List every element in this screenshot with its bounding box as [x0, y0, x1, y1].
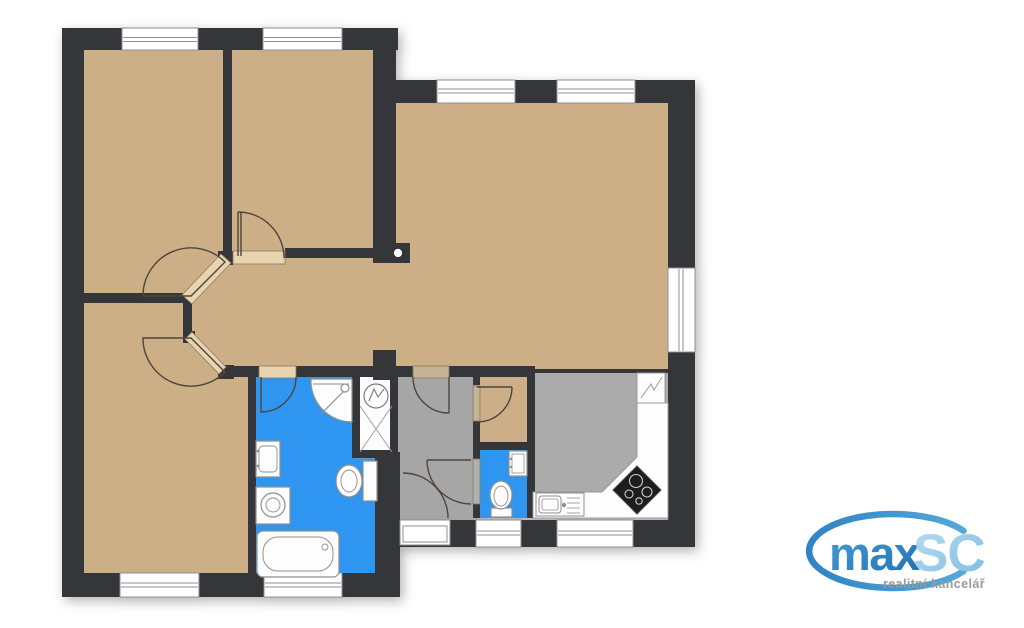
wall-living-kitchen-line	[533, 369, 668, 373]
column-marker-dot	[394, 249, 403, 258]
window	[668, 268, 695, 352]
floorplan	[62, 28, 695, 597]
wall-corridor-east-b	[473, 421, 480, 459]
wall-top-left	[62, 28, 398, 50]
window	[437, 80, 515, 103]
wall-bottom-left	[62, 573, 400, 597]
wall-bed2-south	[285, 248, 375, 258]
logo-tagline: realitní kancelář	[883, 577, 985, 591]
bathtub-icon	[257, 531, 339, 577]
wall-closet-west	[352, 373, 360, 458]
kitchen-sink-icon	[536, 493, 584, 516]
wall-left	[62, 28, 84, 595]
pantry-floor	[473, 373, 533, 450]
window	[557, 520, 633, 547]
wc-toilet-icon	[490, 481, 512, 517]
sill-pantry-door	[473, 386, 480, 421]
agency-logo: max SC realitní kancelář	[809, 514, 985, 591]
corridor-floor	[392, 369, 478, 520]
wall-closet-south	[352, 450, 394, 458]
wall-pantry-wc	[473, 442, 533, 450]
refrigerator-icon	[637, 373, 665, 403]
sill-wc-door	[473, 459, 480, 504]
utility-closet-floor	[356, 373, 394, 458]
window	[120, 573, 199, 597]
living-room-floor	[392, 103, 668, 373]
wall-corridor-north-b	[449, 366, 533, 377]
entrance-door	[400, 520, 450, 545]
logo-text-primary: max	[829, 527, 920, 580]
wall-corridor-east-a	[473, 373, 480, 385]
washing-machine-icon	[256, 487, 290, 524]
window	[476, 520, 521, 547]
window	[122, 28, 198, 50]
window	[263, 28, 342, 50]
wall-corridor-north-a	[396, 366, 413, 377]
floorplan-canvas: max SC realitní kancelář	[0, 0, 1024, 628]
washbasin-icon	[256, 441, 280, 477]
wall-bed2-living	[373, 28, 396, 263]
sill-bathroom-door	[259, 366, 296, 378]
room-top-middle-floor	[223, 48, 375, 258]
logo-text-secondary: SC	[913, 524, 985, 583]
wc-washbasin-icon	[509, 451, 527, 476]
wall-bed1-south	[82, 293, 185, 303]
wall-bed1-bed2	[223, 48, 232, 258]
wall-stub-lower	[373, 350, 396, 380]
wall-bed3-east	[248, 366, 256, 573]
wall-corridor-west	[390, 366, 398, 520]
wall-corridor-east-c	[473, 504, 480, 518]
floorplan-page: max SC realitní kancelář	[0, 0, 1024, 628]
sill-corridor-door	[413, 366, 449, 378]
window	[557, 80, 635, 103]
